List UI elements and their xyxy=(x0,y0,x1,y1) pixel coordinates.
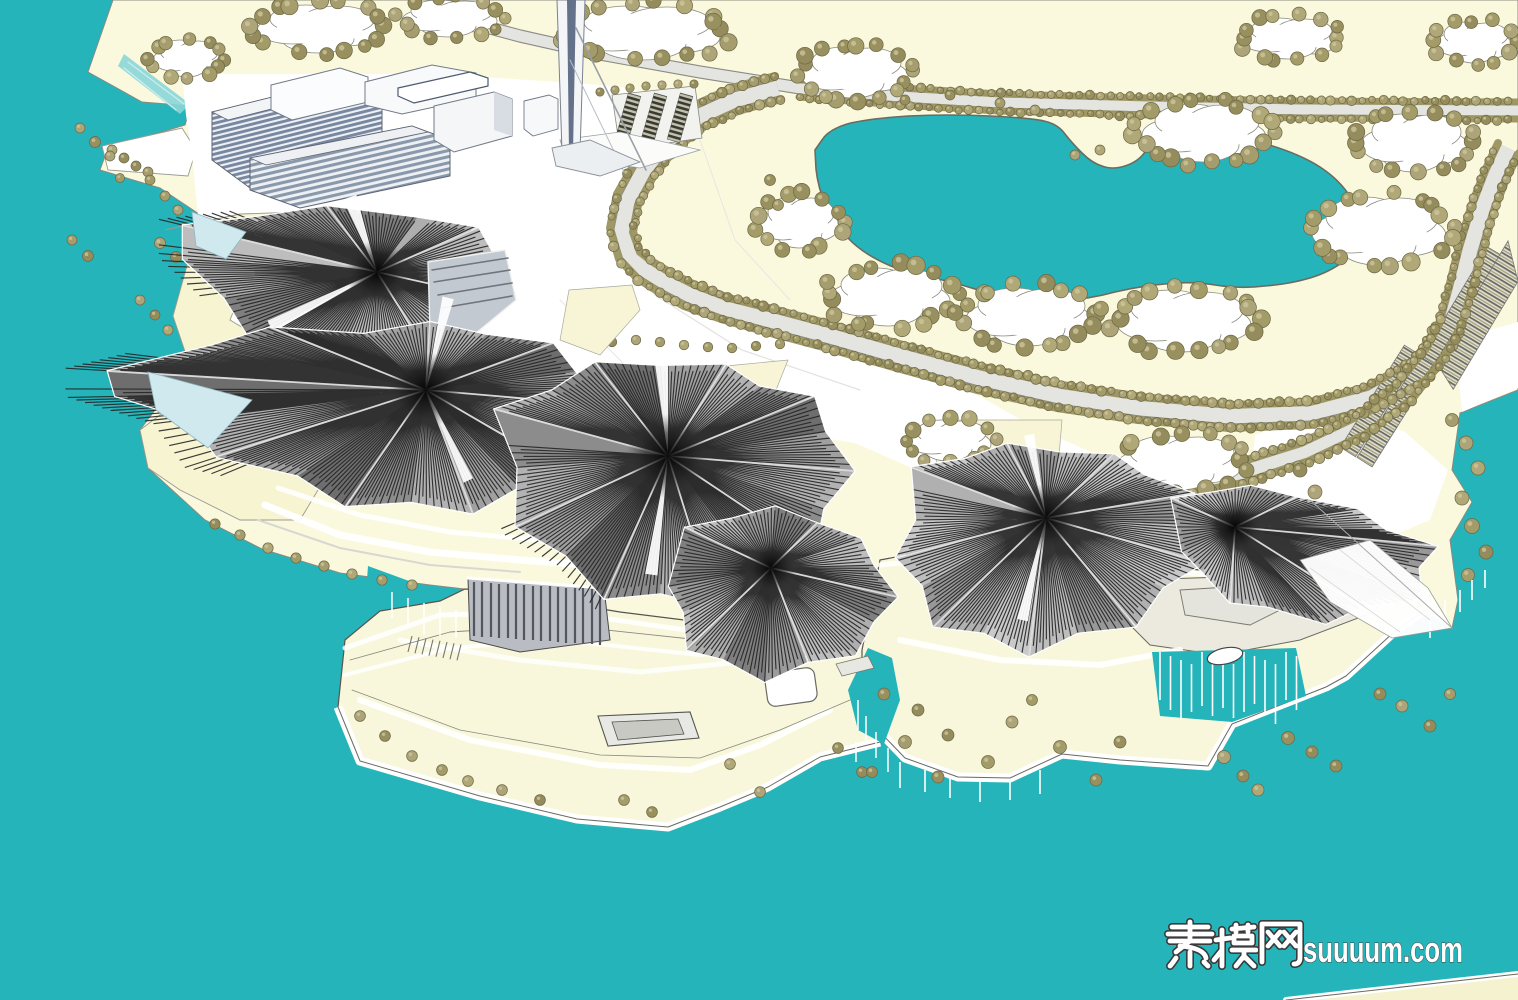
svg-text:suuuum.com: suuuum.com xyxy=(1303,929,1463,970)
